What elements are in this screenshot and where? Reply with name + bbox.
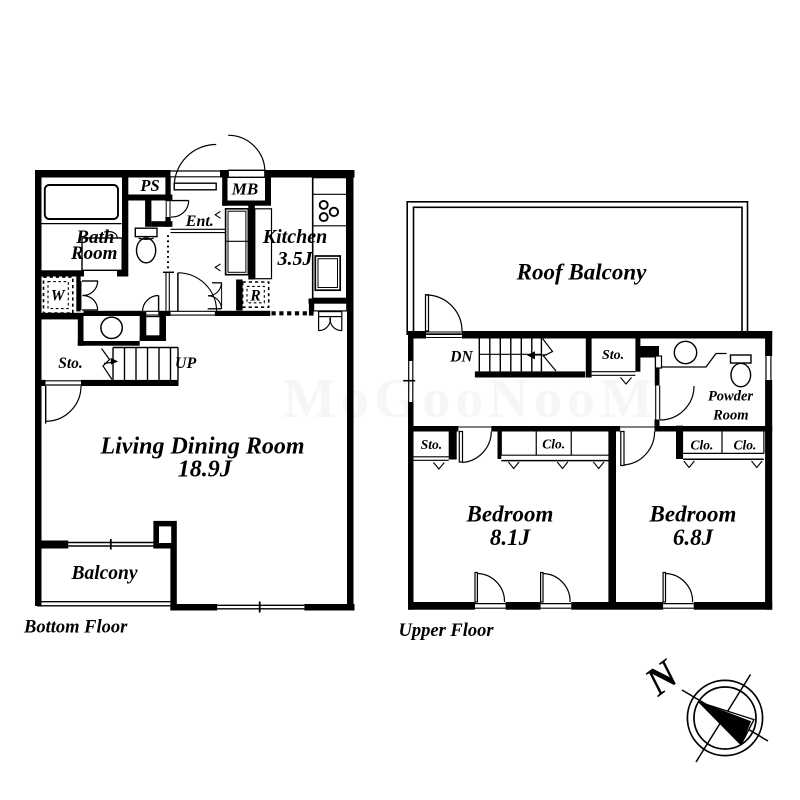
svg-text:DN: DN bbox=[449, 349, 473, 366]
svg-text:Powder: Powder bbox=[708, 389, 753, 405]
svg-text:8.1J: 8.1J bbox=[490, 525, 532, 550]
svg-text:UP: UP bbox=[175, 355, 197, 372]
svg-text:Ent.: Ent. bbox=[185, 213, 214, 230]
svg-text:Clo.: Clo. bbox=[691, 438, 714, 453]
svg-text:Clo.: Clo. bbox=[542, 437, 565, 452]
svg-text:W: W bbox=[51, 288, 66, 305]
svg-text:Sto.: Sto. bbox=[421, 437, 442, 452]
svg-text:Bedroom: Bedroom bbox=[466, 502, 554, 527]
svg-text:Sto.: Sto. bbox=[602, 348, 624, 363]
svg-text:Sto.: Sto. bbox=[58, 355, 83, 372]
svg-text:Room: Room bbox=[70, 243, 117, 264]
svg-text:Room: Room bbox=[712, 408, 748, 424]
svg-text:Balcony: Balcony bbox=[70, 563, 137, 584]
svg-text:6.8J: 6.8J bbox=[673, 525, 715, 550]
svg-text:Kitchen: Kitchen bbox=[262, 226, 327, 248]
svg-text:R: R bbox=[249, 288, 260, 305]
svg-text:Roof Balcony: Roof Balcony bbox=[516, 260, 647, 285]
svg-text:Upper Floor: Upper Floor bbox=[399, 621, 495, 641]
svg-text:MB: MB bbox=[231, 180, 258, 199]
svg-text:Bedroom: Bedroom bbox=[649, 502, 737, 527]
svg-text:Bottom Floor: Bottom Floor bbox=[23, 618, 128, 638]
svg-text:PS: PS bbox=[139, 176, 159, 195]
svg-text:Clo.: Clo. bbox=[733, 438, 756, 453]
svg-text:18.9J: 18.9J bbox=[178, 457, 233, 483]
svg-text:3.5J: 3.5J bbox=[277, 248, 314, 270]
svg-text:MoGooNooM: MoGooNooM bbox=[283, 368, 658, 430]
